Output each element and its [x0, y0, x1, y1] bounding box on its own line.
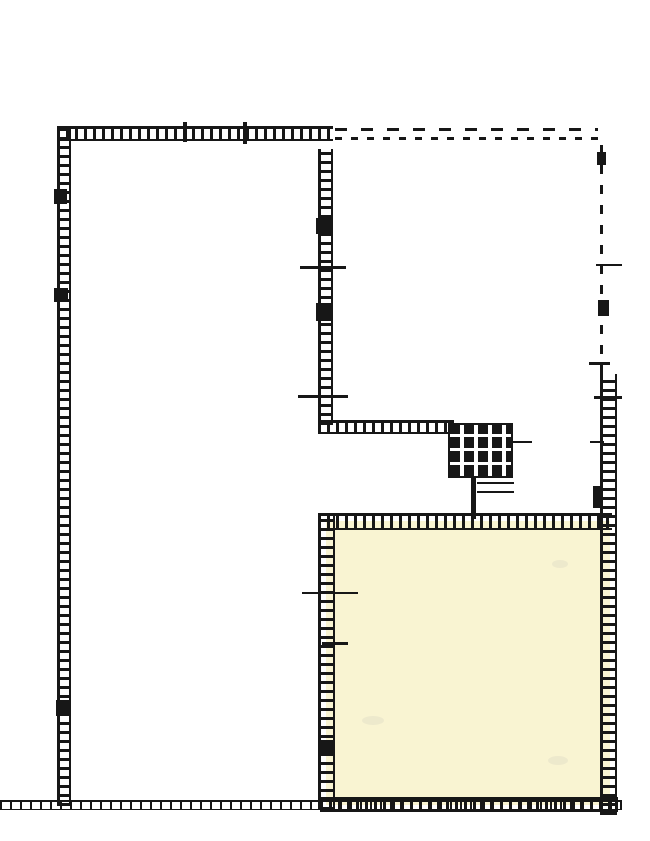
right-wall-blob-mid	[598, 300, 609, 316]
top-wall-dash-lower	[335, 137, 598, 140]
stair-lower-line-1	[477, 482, 514, 484]
room-bottom-wall	[320, 797, 618, 812]
room-left-wall-blob	[318, 740, 334, 756]
room-smudge-3	[548, 756, 568, 765]
right-wall-blob-upper	[597, 152, 606, 165]
floor-plan-canvas	[0, 0, 650, 841]
middle-wall-blob-1	[316, 218, 331, 234]
room-top-wall	[318, 513, 612, 530]
stair-lower-line-2	[477, 491, 514, 493]
middle-wall-blob-2	[316, 303, 331, 321]
room-left-wall-tick-1	[302, 592, 358, 594]
right-wall-tick-small	[590, 441, 604, 443]
room-smudge-1	[552, 560, 568, 568]
middle-wall-tick-2	[298, 395, 348, 398]
top-wall-tick-2	[243, 122, 247, 144]
left-wall-blob-2	[54, 288, 68, 302]
middle-wall-tick-1	[300, 266, 346, 269]
mid-horizontal-wall	[318, 420, 454, 434]
right-wall-tick-lower	[594, 396, 622, 399]
stair-block	[448, 423, 513, 478]
right-wall-blob-lower	[593, 486, 601, 508]
room-left-wall-tick-2	[322, 642, 348, 645]
left-wall-blob-1	[54, 189, 67, 204]
left-wall-blob-3	[56, 700, 69, 716]
right-wall-upper-dashed	[600, 136, 603, 374]
top-wall	[57, 126, 333, 141]
middle-wall	[318, 149, 333, 425]
right-wall-tick-mid	[589, 362, 610, 365]
stair-side-tick	[512, 441, 532, 443]
top-wall-dash-upper	[335, 128, 598, 131]
right-wall-tick-upper	[596, 264, 622, 266]
room-left-wall	[318, 513, 335, 810]
room-smudge-2	[362, 716, 384, 725]
top-wall-tick-1	[183, 122, 187, 142]
